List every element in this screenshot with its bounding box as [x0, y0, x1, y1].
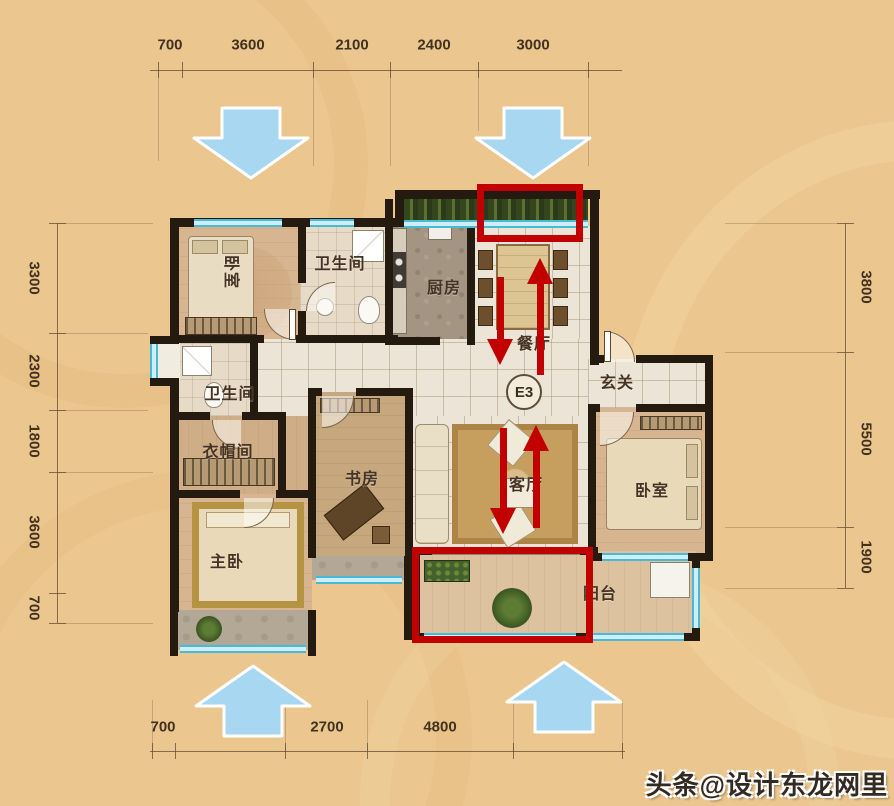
red-arrow-down-shaft [497, 277, 504, 341]
window [692, 568, 700, 628]
red-arrow-up-shaft [537, 282, 544, 375]
window [586, 633, 684, 641]
wall [308, 610, 316, 656]
sofa [415, 424, 449, 544]
storage-box [650, 562, 690, 598]
stove [392, 252, 406, 288]
tick [175, 743, 176, 759]
window [180, 645, 306, 653]
dim-right-1: 3800 [858, 270, 875, 303]
window [310, 219, 354, 227]
wall [405, 388, 413, 558]
dim-top-1: 700 [157, 37, 182, 54]
red-arrow-up-head [523, 425, 549, 451]
dim-bottom-3: 4800 [423, 719, 456, 736]
extension-line [367, 700, 368, 751]
wall [308, 388, 316, 558]
dimension-line-right [845, 223, 846, 588]
wall [385, 199, 393, 345]
wall [596, 355, 604, 363]
window [150, 344, 158, 378]
dim-left-4: 3600 [26, 515, 43, 548]
airflow-arrow-down-icon [474, 106, 592, 180]
dimension-line-left [57, 223, 58, 623]
wall [170, 218, 179, 342]
room-label-dining: 餐厅 [517, 330, 551, 354]
red-arrow-down-head [490, 508, 516, 534]
wall [385, 337, 440, 345]
room-label-bedroom-right: 卧室 [635, 477, 669, 501]
entry-door-leaf [604, 331, 611, 362]
wall [150, 378, 179, 386]
red-arrow-up-shaft [533, 449, 540, 528]
dim-top-5: 3000 [516, 37, 549, 54]
bedroom-top-left-door-leaf [289, 309, 296, 340]
tick [837, 352, 854, 353]
red-arrow-up-head [527, 258, 553, 284]
tick [49, 593, 66, 594]
dim-right-2: 5500 [858, 422, 875, 455]
extension-line [390, 71, 391, 166]
dim-bottom-2: 2700 [310, 719, 343, 736]
room-label-kitchen: 厨房 [427, 274, 461, 298]
tick [182, 62, 183, 78]
dining-chair [553, 250, 568, 270]
wall [178, 490, 240, 498]
extension-line [58, 410, 148, 411]
wall [278, 412, 286, 497]
extension-line [725, 527, 837, 528]
dim-left-5: 700 [26, 595, 43, 620]
wall [636, 404, 713, 412]
red-arrow-down-shaft [500, 428, 507, 510]
wall [296, 335, 398, 343]
unit-badge: E3 [506, 374, 542, 410]
airflow-arrow-up-icon [505, 660, 623, 734]
shower [182, 346, 212, 376]
pillow [222, 240, 248, 254]
pillow [192, 240, 218, 254]
extension-line [725, 352, 837, 353]
dim-top-4: 2400 [417, 37, 450, 54]
room-label-bedroom-top-left: 卧室 [221, 255, 245, 289]
pillow [686, 444, 698, 478]
floorplan-image: 卧室 卫生间 厨房 餐厅 玄关 卫生间 衣帽间 书房 客厅 卧室 主卧 阳台 E… [0, 0, 894, 806]
room-label-bathroom-mid: 卫生间 [204, 380, 255, 404]
wardrobe [185, 317, 257, 335]
tick [837, 527, 854, 528]
wall [590, 190, 599, 365]
dining-chair [478, 306, 493, 326]
pillow [686, 486, 698, 520]
room-label-cloakroom: 衣帽间 [202, 438, 253, 462]
extension-line [58, 472, 153, 473]
extension-line [725, 588, 837, 589]
window [316, 576, 402, 584]
wall [588, 404, 596, 554]
tick [837, 588, 854, 589]
wall [178, 335, 264, 343]
dim-right-3: 1900 [858, 540, 875, 573]
wall [705, 355, 713, 561]
wall [298, 227, 306, 283]
airflow-arrow-up-icon [194, 664, 312, 738]
dim-left-1: 3300 [26, 261, 43, 294]
dining-chair [478, 278, 493, 298]
extension-line [725, 223, 837, 224]
extension-line [58, 223, 153, 224]
wall [150, 336, 179, 344]
dim-bottom-1: 700 [150, 719, 175, 736]
dining-chair [553, 278, 568, 298]
window [194, 219, 282, 227]
room-label-study: 书房 [345, 465, 379, 489]
toilet [358, 296, 380, 324]
wardrobe [183, 458, 275, 486]
wall [308, 388, 322, 396]
red-highlight-box-top-window [477, 184, 583, 242]
red-highlight-box-south-balcony [412, 547, 593, 643]
wall [636, 355, 713, 363]
kitchen-sink [428, 226, 452, 240]
side-table [372, 526, 390, 544]
dimension-line-top [150, 70, 622, 71]
dim-top-3: 2100 [335, 37, 368, 54]
extension-line [58, 333, 148, 334]
window [602, 553, 688, 561]
dining-chair [553, 306, 568, 326]
tick [837, 223, 854, 224]
extension-line [313, 71, 314, 166]
extension-line [58, 623, 153, 624]
airflow-arrow-down-icon [192, 106, 310, 180]
wardrobe [640, 416, 702, 430]
potted-plant [196, 616, 222, 642]
watermark-text: 头条@设计东龙网里 [646, 765, 888, 802]
room-label-bathroom-top: 卫生间 [314, 250, 365, 274]
dim-top-2: 3600 [231, 37, 264, 54]
unit-badge-text: E3 [515, 384, 533, 401]
wall [170, 610, 178, 656]
extension-line [158, 71, 159, 161]
wall [404, 556, 412, 640]
dining-chair [478, 250, 493, 270]
dim-left-3: 1800 [26, 424, 43, 457]
dim-left-2: 2300 [26, 354, 43, 387]
red-arrow-down-head [487, 339, 513, 365]
wall [588, 404, 600, 412]
wall [178, 412, 210, 420]
dimension-line-bottom [150, 751, 625, 752]
room-label-entry: 玄关 [600, 369, 634, 393]
room-label-master-bedroom: 主卧 [210, 548, 244, 572]
